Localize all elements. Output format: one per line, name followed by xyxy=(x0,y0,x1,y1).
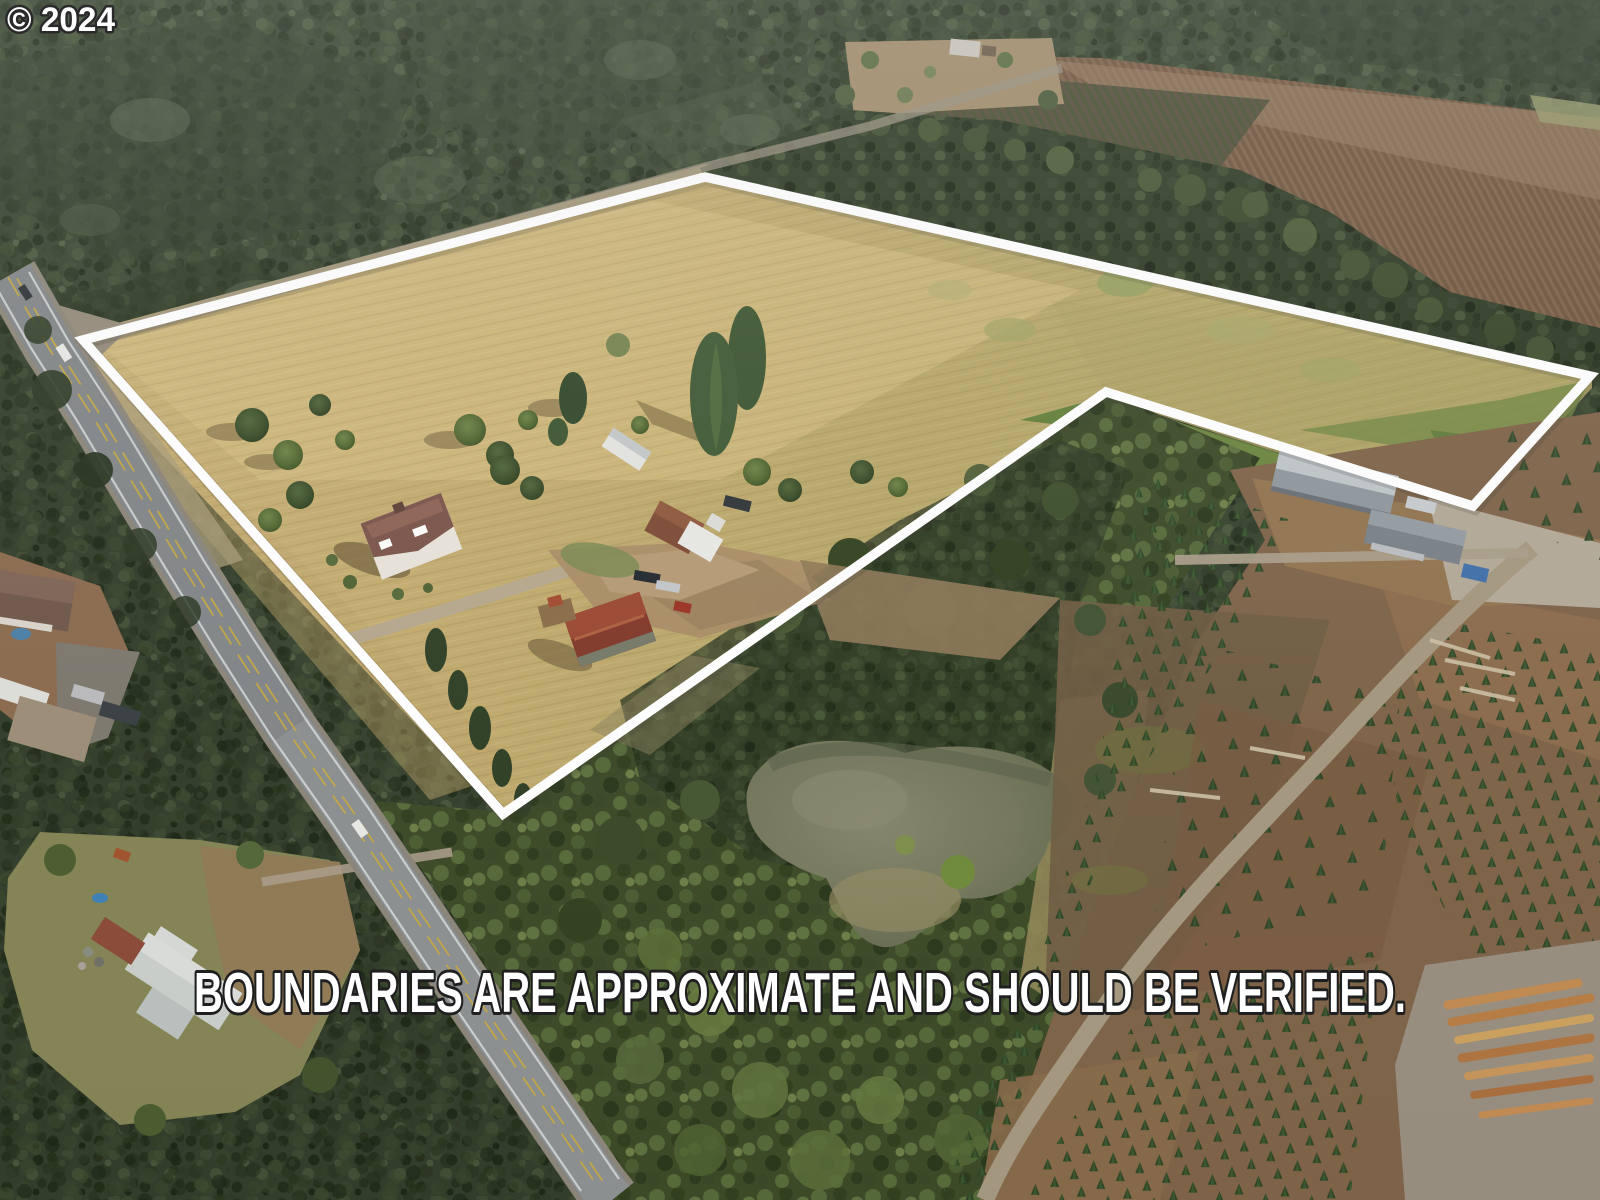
svg-text:© 2024: © 2024 xyxy=(7,1,115,39)
svg-text:BOUNDARIES ARE APPROXIMATE AND: BOUNDARIES ARE APPROXIMATE AND SHOULD BE… xyxy=(194,961,1406,1025)
